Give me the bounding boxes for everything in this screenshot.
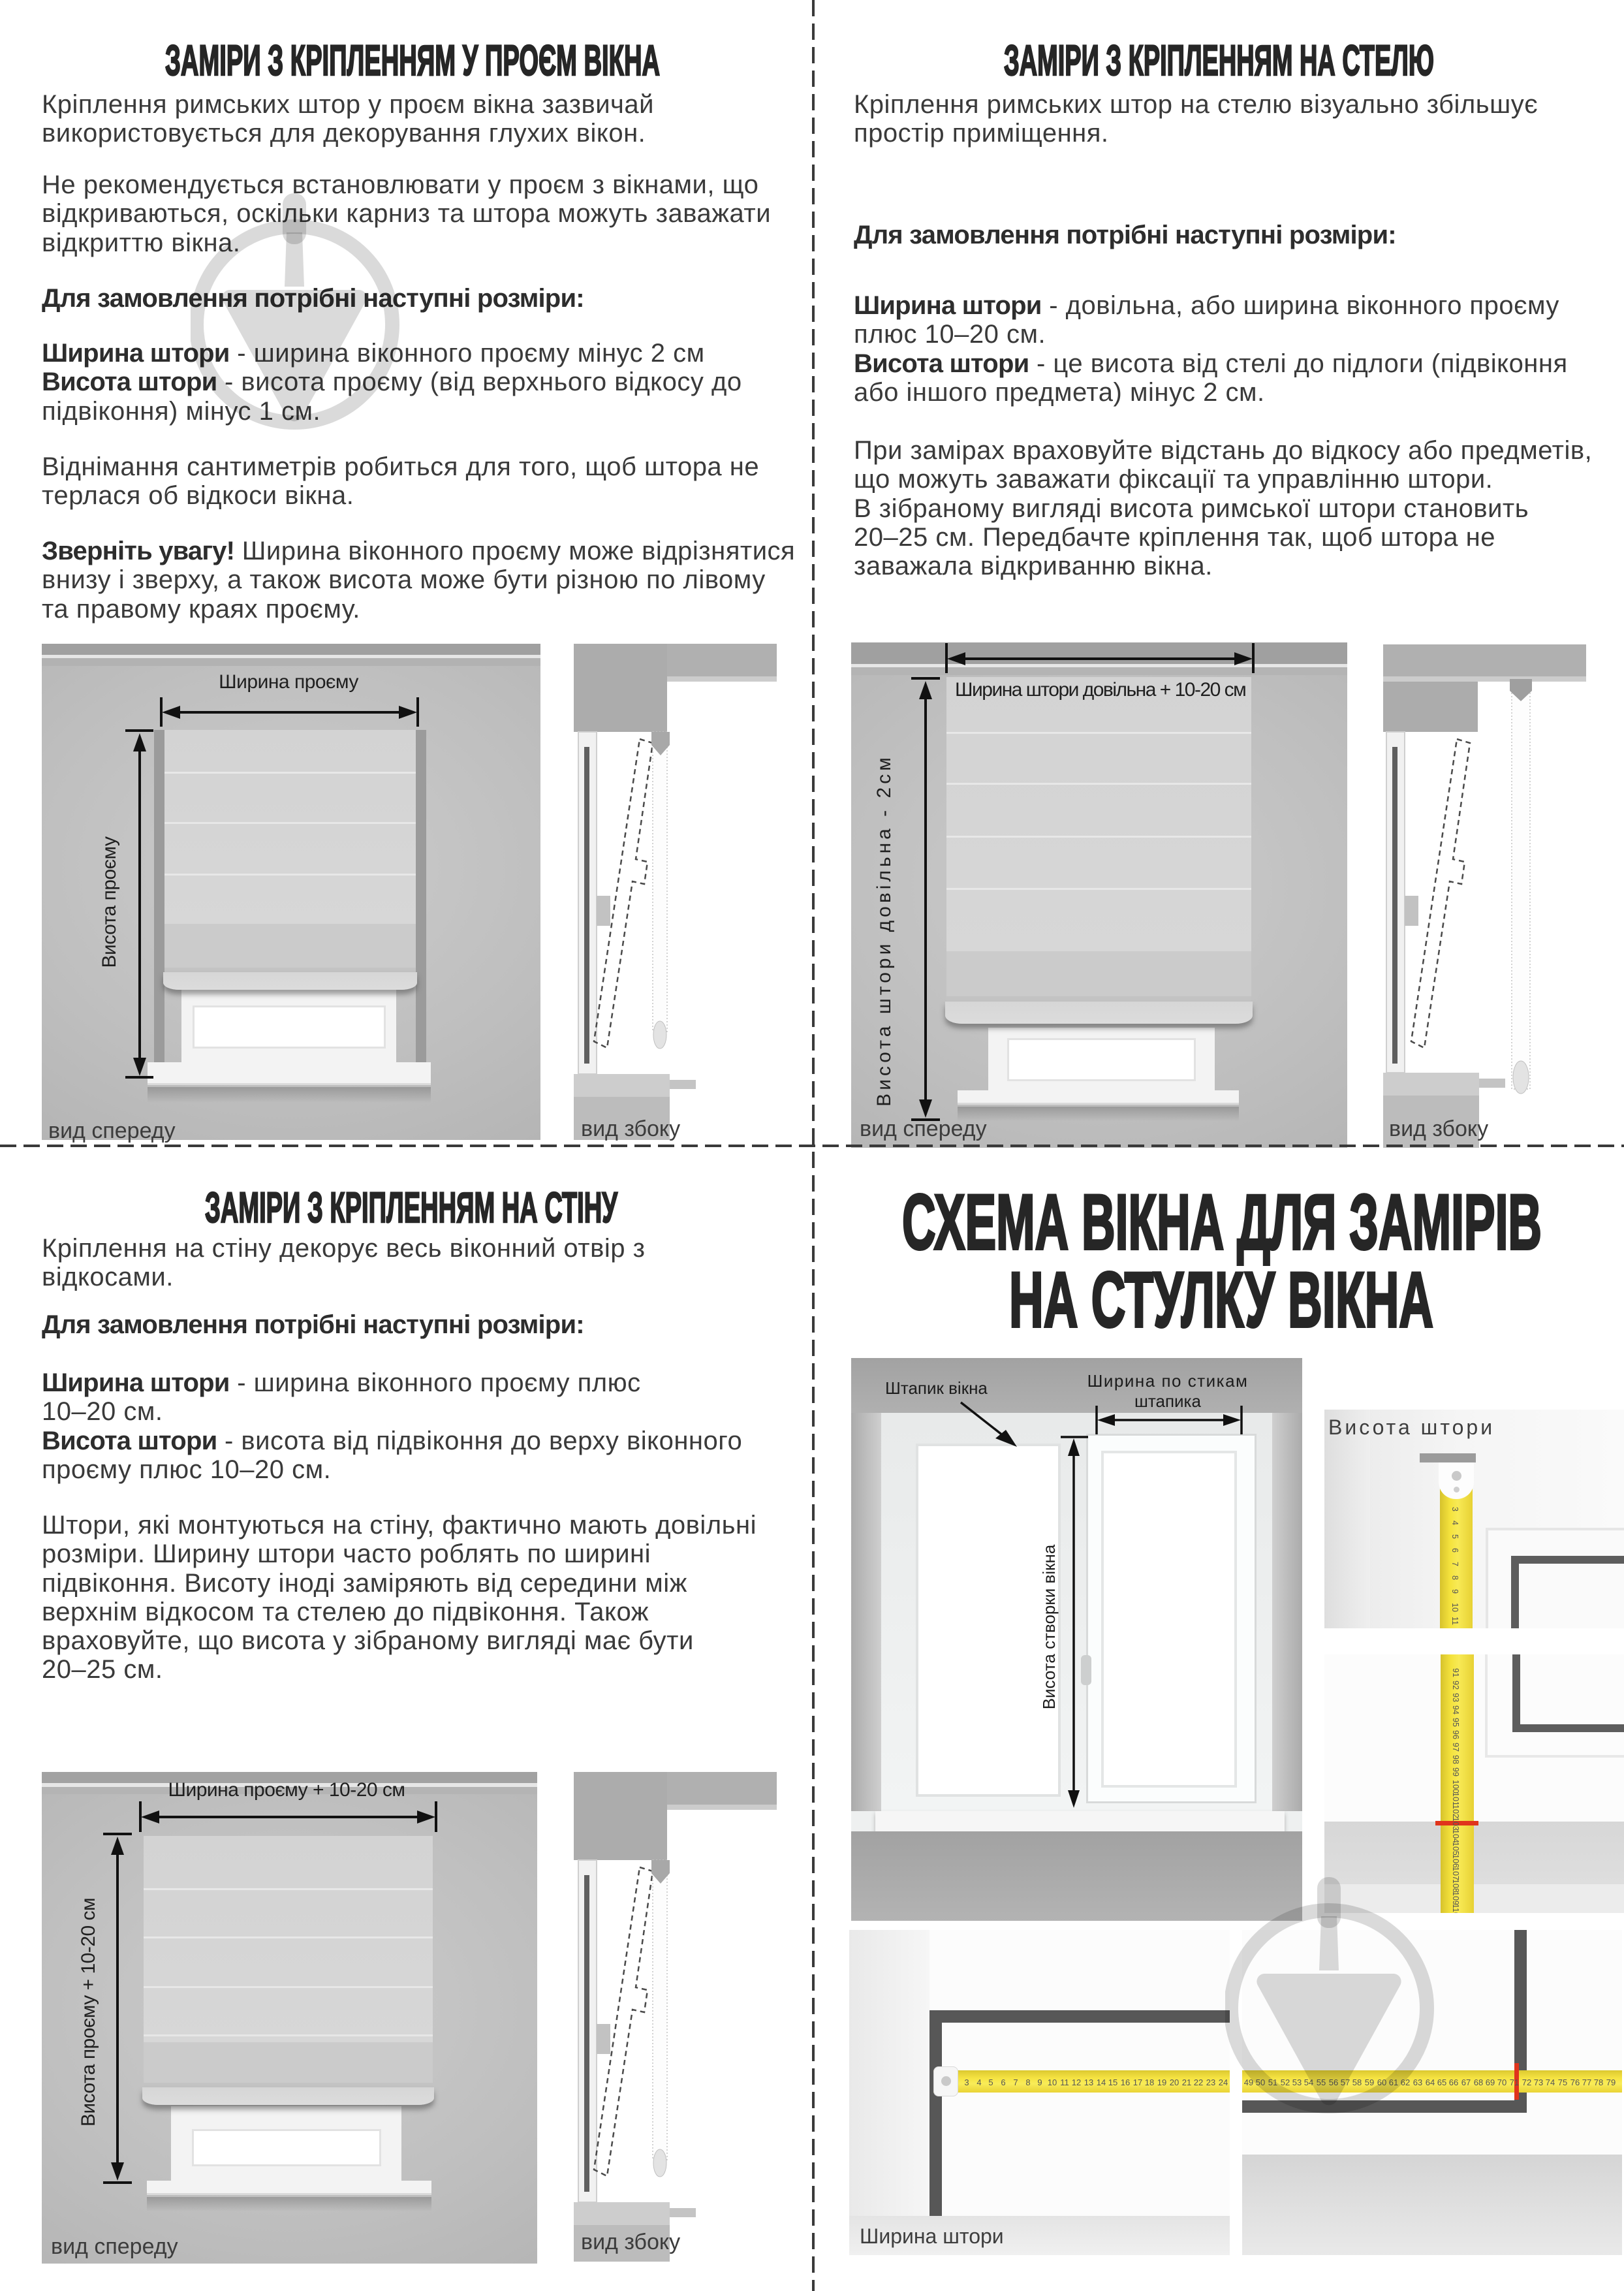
svg-text:14: 14 (1097, 2078, 1106, 2087)
svg-text:100: 100 (1451, 1780, 1460, 1793)
svg-text:98: 98 (1451, 1755, 1460, 1764)
svg-text:101: 101 (1451, 1792, 1460, 1806)
svg-text:4: 4 (1450, 1521, 1460, 1525)
svg-text:20: 20 (1170, 2078, 1179, 2087)
svg-text:6: 6 (1001, 2078, 1005, 2087)
svg-text:15: 15 (1108, 2078, 1117, 2087)
svg-text:5: 5 (1450, 1534, 1460, 1539)
svg-text:68: 68 (1474, 2078, 1483, 2087)
svg-text:103: 103 (1451, 1817, 1460, 1831)
svg-text:73: 73 (1534, 2078, 1543, 2087)
svg-text:10: 10 (1450, 1603, 1460, 1612)
svg-text:110: 110 (1451, 1904, 1460, 1913)
svg-text:65: 65 (1437, 2078, 1446, 2087)
svg-text:67: 67 (1461, 2078, 1471, 2087)
svg-text:92: 92 (1451, 1681, 1460, 1690)
svg-text:9: 9 (1450, 1589, 1460, 1594)
svg-text:21: 21 (1182, 2078, 1191, 2087)
svg-text:99: 99 (1451, 1767, 1460, 1777)
svg-text:5: 5 (988, 2078, 993, 2087)
svg-text:18: 18 (1145, 2078, 1154, 2087)
svg-text:10: 10 (1048, 2078, 1057, 2087)
svg-text:75: 75 (1558, 2078, 1567, 2087)
svg-text:8: 8 (1450, 1575, 1460, 1580)
svg-text:78: 78 (1594, 2078, 1603, 2087)
svg-text:72: 72 (1522, 2078, 1531, 2087)
svg-text:66: 66 (1449, 2078, 1458, 2087)
svg-text:4: 4 (976, 2078, 981, 2087)
svg-text:16: 16 (1121, 2078, 1130, 2087)
svg-text:105: 105 (1451, 1842, 1460, 1856)
svg-text:91: 91 (1451, 1668, 1460, 1677)
svg-text:13: 13 (1084, 2078, 1093, 2087)
svg-text:12: 12 (1072, 2078, 1081, 2087)
svg-text:23: 23 (1206, 2078, 1215, 2087)
svg-text:19: 19 (1157, 2078, 1166, 2087)
svg-text:17: 17 (1133, 2078, 1142, 2087)
svg-text:22: 22 (1194, 2078, 1203, 2087)
svg-text:79: 79 (1606, 2078, 1616, 2087)
svg-text:107: 107 (1451, 1867, 1460, 1880)
svg-text:70: 70 (1497, 2078, 1507, 2087)
svg-text:96: 96 (1451, 1730, 1460, 1739)
svg-text:74: 74 (1546, 2078, 1555, 2087)
svg-text:69: 69 (1486, 2078, 1495, 2087)
svg-text:3: 3 (1450, 1507, 1460, 1511)
svg-text:76: 76 (1570, 2078, 1580, 2087)
svg-text:6: 6 (1450, 1548, 1460, 1553)
svg-text:77: 77 (1582, 2078, 1591, 2087)
svg-text:93: 93 (1451, 1693, 1460, 1702)
svg-text:71: 71 (1510, 2078, 1519, 2087)
svg-text:11: 11 (1450, 1617, 1460, 1625)
svg-text:3: 3 (964, 2078, 969, 2087)
svg-text:97: 97 (1451, 1743, 1460, 1752)
svg-text:106: 106 (1451, 1854, 1460, 1868)
svg-text:109: 109 (1451, 1891, 1460, 1905)
svg-text:108: 108 (1451, 1879, 1460, 1893)
svg-text:8: 8 (1025, 2078, 1030, 2087)
svg-text:94: 94 (1451, 1705, 1460, 1714)
svg-text:9: 9 (1037, 2078, 1042, 2087)
svg-text:95: 95 (1451, 1718, 1460, 1727)
svg-text:7: 7 (1450, 1562, 1460, 1566)
svg-text:104: 104 (1451, 1829, 1460, 1843)
svg-text:7: 7 (1013, 2078, 1018, 2087)
svg-text:102: 102 (1451, 1805, 1460, 1818)
svg-text:11: 11 (1060, 2078, 1069, 2087)
